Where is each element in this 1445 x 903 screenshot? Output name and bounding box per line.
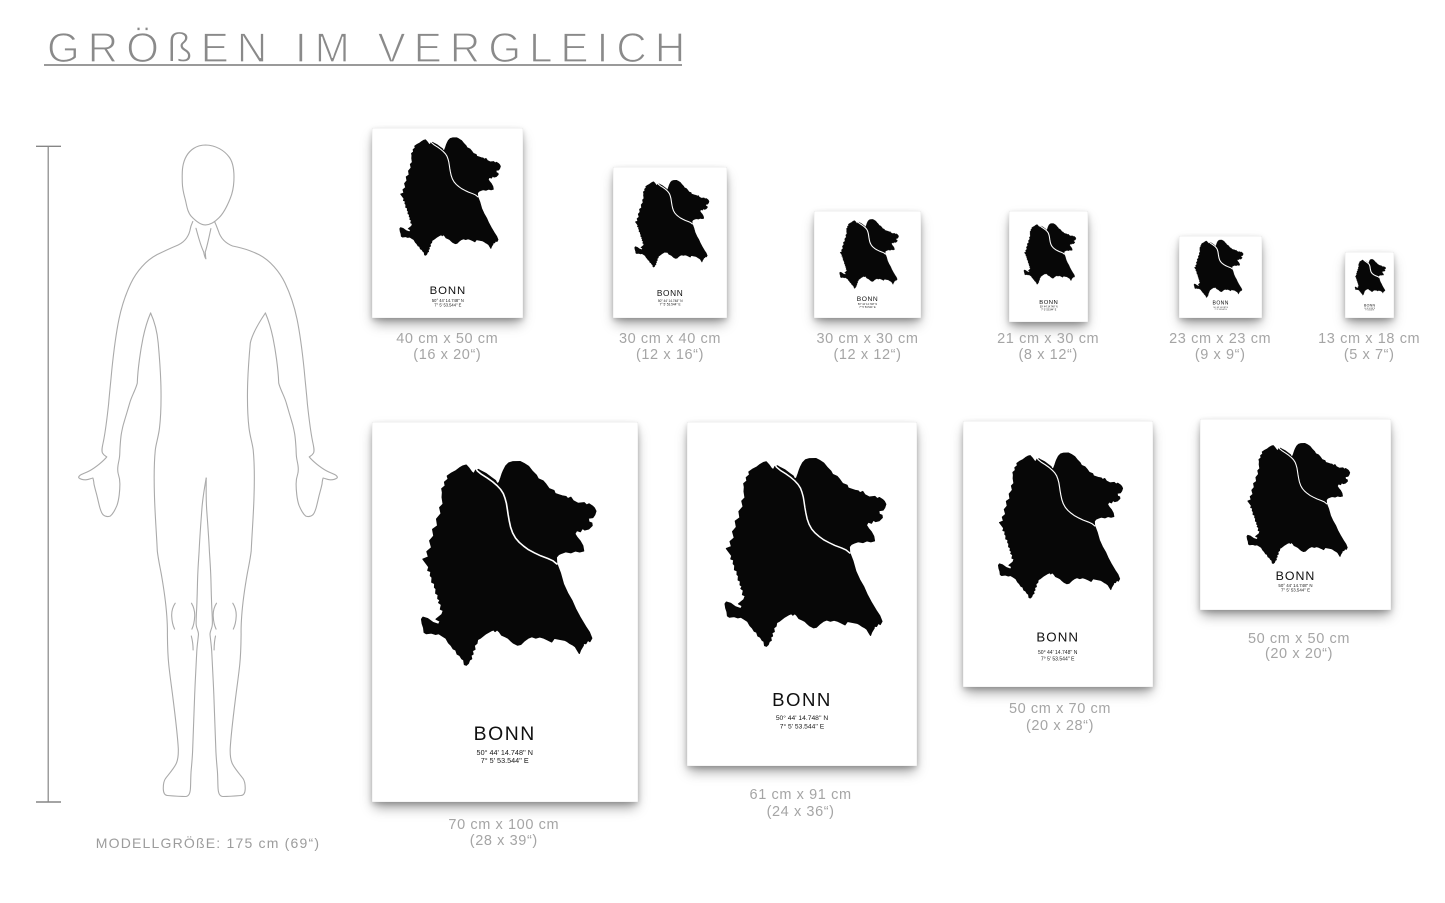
svg-text:BONN: BONN bbox=[857, 295, 878, 302]
svg-text:BONN: BONN bbox=[1039, 299, 1058, 305]
svg-text:BONN: BONN bbox=[657, 288, 684, 298]
svg-text:BONN: BONN bbox=[772, 689, 832, 710]
svg-text:7° 5' 53.544'' E: 7° 5' 53.544'' E bbox=[481, 756, 529, 765]
svg-text:BONN: BONN bbox=[1037, 629, 1080, 644]
svg-text:BONN: BONN bbox=[474, 723, 536, 745]
svg-text:7° 5' 53.544'' E: 7° 5' 53.544'' E bbox=[1365, 310, 1374, 312]
svg-text:7° 5' 53.544'' E: 7° 5' 53.544'' E bbox=[780, 722, 825, 730]
svg-text:50° 44' 14.748'' N: 50° 44' 14.748'' N bbox=[1039, 306, 1057, 308]
svg-text:BONN: BONN bbox=[1212, 301, 1228, 307]
svg-text:BONN: BONN bbox=[1276, 569, 1316, 583]
svg-text:BONN: BONN bbox=[429, 285, 466, 297]
svg-text:7° 5' 53.544'' E: 7° 5' 53.544'' E bbox=[859, 306, 876, 309]
svg-text:BONN: BONN bbox=[1363, 304, 1374, 308]
svg-text:7° 5' 53.544'' E: 7° 5' 53.544'' E bbox=[1281, 588, 1310, 593]
svg-text:7° 5' 53.544'' E: 7° 5' 53.544'' E bbox=[1041, 656, 1075, 662]
svg-text:7° 5' 53.544'' E: 7° 5' 53.544'' E bbox=[434, 303, 461, 308]
svg-text:50° 44' 14.748'' N: 50° 44' 14.748'' N bbox=[776, 714, 829, 722]
svg-text:7° 5' 53.544'' E: 7° 5' 53.544'' E bbox=[1041, 309, 1057, 311]
svg-text:50° 44' 14.748'' N: 50° 44' 14.748'' N bbox=[1038, 649, 1078, 655]
svg-text:7° 5' 53.544'' E: 7° 5' 53.544'' E bbox=[1214, 309, 1227, 311]
svg-text:50° 44' 14.748'' N: 50° 44' 14.748'' N bbox=[1364, 308, 1375, 310]
svg-text:7° 5' 53.544'' E: 7° 5' 53.544'' E bbox=[659, 303, 680, 307]
